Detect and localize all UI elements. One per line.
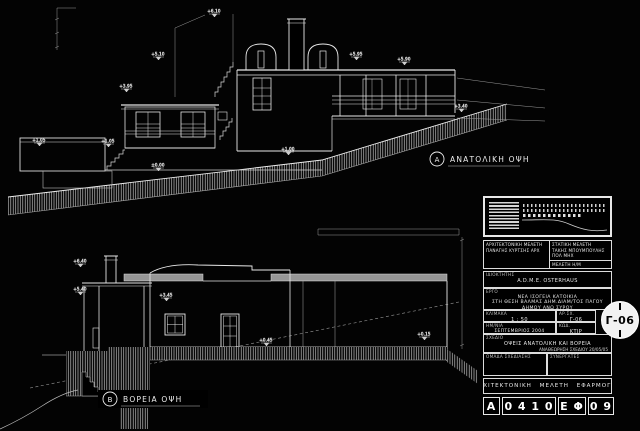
drawing-revision: ΑΝΑΘΕΩΡΗΣΗ ΣΧΕΔΙΟΥ 20/05/05 — [484, 347, 611, 352]
north-view-label: B ΒΟΡΕΙΑ ΟΨΗ — [98, 390, 208, 408]
east-annex-window-2 — [181, 112, 205, 137]
level-text: ±0.00 — [151, 163, 165, 168]
north-ground-hatch — [0, 347, 478, 429]
code-box-4: 0 9 — [588, 397, 614, 415]
east-view-title: ΑΝΑΤΟΛΙΚΗ ΟΨΗ — [450, 155, 530, 164]
east-arch-2 — [308, 44, 338, 70]
partners-label: ΣΥΝΕΡΓΑΤΕΣ — [548, 354, 611, 360]
east-view-tag: A — [435, 156, 440, 164]
architect-role: ΑΡΧΙΤΕΚΤΟΝΙΚΗ ΜΕΛΕΤΗ — [486, 242, 542, 247]
code-box-3: Ε Φ — [558, 397, 586, 415]
code-box-2: 0 4 1 0 — [502, 397, 556, 415]
level-text: +1.05 — [101, 139, 115, 144]
level-text: +5.90 — [397, 57, 411, 62]
date-cell: ΗΜ/ΝΙΑ ΣΕΠΤΕΜΒΡΙΟΣ 2004 — [483, 322, 556, 334]
east-ground-hatch — [8, 104, 507, 215]
east-stairs — [107, 14, 233, 170]
titleblock-code-boxes: Α 0 4 1 0 Ε Φ 0 9 — [483, 397, 614, 415]
mep-role: ΜΕΛΕΤΗ Η/Μ — [552, 262, 581, 267]
north-roof-beam-right — [271, 274, 447, 281]
level-text: +5.10 — [151, 52, 165, 57]
structural-cell: ΣΤΑΤΙΚΗ ΜΕΛΕΤΗ ΤΑΚΗΣ ΜΠΟΥΜΠΟΥΛΗΣ ΠΟΛ ΜΗΧ — [550, 241, 611, 261]
titleblock-project: ΕΡΓΟ ΝΕΑ ΙΣΟΓΕΙΑ ΚΑΤΟΙΚΙΑ ΣΤΗ ΘΕΣΗ ΒΑΛΜΑ… — [483, 288, 612, 310]
structural-role: ΣΤΑΤΙΚΗ ΜΕΛΕΤΗ — [552, 242, 591, 247]
east-window-1 — [253, 78, 271, 110]
level-text: +6.10 — [207, 9, 221, 14]
level-text: +3.40 — [454, 104, 468, 109]
number-cell: ΑΡ.ΣΧ. Γ-06 — [556, 310, 596, 322]
code-cell: ΚΩΔ. ΚΤΙΡ — [556, 322, 596, 334]
north-porch — [42, 283, 152, 355]
level-text: +1.05 — [32, 138, 46, 143]
owner-name: A.D.M.E. OSTERHAUS — [484, 278, 611, 284]
titleblock-owner: ΙΔΙΟΚΤΗΤΗΣ A.D.M.E. OSTERHAUS — [483, 271, 612, 288]
level-text: +3.95 — [119, 84, 133, 89]
titleblock-drawing-title: ΣΧΕΔΙΟ ΟΨΕΙΣ ΑΝΑΤΟΛΙΚΗ ΚΑΙ ΒΟΡΕΙΑ ΑΝΑΘΕΩ… — [483, 334, 612, 353]
east-annex-window-1 — [136, 112, 160, 137]
level-text: +5.40 — [73, 287, 87, 292]
drawing-number-badge: Γ-06 — [601, 301, 639, 339]
east-chimney — [287, 19, 306, 70]
north-view-tag: B — [108, 396, 113, 404]
east-veranda — [332, 70, 455, 119]
north-chimney — [104, 256, 118, 283]
north-level-markers: +6.40 +5.40 +3.45 +0.45 +0.15 — [73, 259, 431, 347]
badge-text: Γ-06 — [606, 314, 635, 327]
level-text: +3.45 — [159, 293, 173, 298]
mep-cell: ΜΕΛΕΤΗ Η/Μ ΤΑΚΗΣ ΒΕΝΕΔΙΚΤΟΣ Η/Μ ΜΗΧ — [550, 261, 611, 269]
level-text: +5.95 — [349, 52, 363, 57]
east-left-wall — [20, 138, 112, 188]
titleblock-location-map — [483, 196, 612, 237]
team-label: ΟΜΑΔΑ ΣΧΕΔΙΑΣΗΣ — [484, 354, 546, 360]
level-text: +6.40 — [73, 259, 87, 264]
east-annex — [121, 105, 227, 148]
structural-name: ΤΑΚΗΣ ΜΠΟΥΜΠΟΥΛΗΣ ΠΟΛ ΜΗΧ — [552, 248, 605, 259]
level-text: +0.45 — [259, 338, 273, 343]
phase-text: ΑΡΧΙΤΕΚΤΟΝΙΚΗ ΜΕΛΕΤΗ ΕΦΑΡΜΟΓΗΣ — [483, 383, 612, 389]
drawing-sheet: +1.05 +1.05 +3.95 +5.10 +6.10 ±0.00 +1.0… — [0, 0, 640, 431]
north-window — [165, 314, 185, 335]
north-roof-beam-left — [124, 274, 203, 281]
map-coastline — [522, 220, 607, 231]
architect-name: ΠΑΝΑΓΗΣ ΚΥΡΤΣΗΣ ΑΡΧ — [486, 248, 540, 253]
architect-cell: ΑΡΧΙΤΕΚΤΟΝΙΚΗ ΜΕΛΕΤΗ ΠΑΝΑΓΗΣ ΚΥΡΤΣΗΣ ΑΡΧ — [484, 241, 550, 268]
titleblock-consultants: ΑΡΧΙΤΕΚΤΟΝΙΚΗ ΜΕΛΕΤΗ ΠΑΝΑΓΗΣ ΚΥΡΤΣΗΣ ΑΡΧ… — [483, 240, 612, 269]
code-box-1: Α — [483, 397, 500, 415]
level-text: +1.00 — [281, 147, 295, 152]
north-door — [221, 314, 239, 349]
level-text: +0.15 — [417, 332, 431, 337]
north-view-title: ΒΟΡΕΙΑ ΟΨΗ — [123, 395, 182, 404]
team-cell: ΟΜΑΔΑ ΣΧΕΔΙΑΣΗΣ — [483, 353, 547, 376]
east-arch-1 — [246, 44, 276, 70]
mep-name: ΤΑΚΗΣ ΒΕΝΕΔΙΚΤΟΣ Η/Μ ΜΗΧ — [552, 268, 607, 269]
partners-cell: ΣΥΝΕΡΓΑΤΕΣ — [547, 353, 612, 376]
north-dimension-lines — [318, 229, 464, 349]
east-view-label: A ΑΝΑΤΟΛΙΚΗ ΟΨΗ — [430, 152, 530, 166]
titleblock-phase-bar: ΑΡΧΙΤΕΚΤΟΝΙΚΗ ΜΕΛΕΤΗ ΕΦΑΡΜΟΓΗΣ — [483, 378, 612, 394]
scale-cell: ΚΛΙΜΑΚΑ 1 : 50 — [483, 310, 556, 322]
east-elevation-drawing: +1.05 +1.05 +3.95 +5.10 +6.10 ±0.00 +1.0… — [0, 0, 640, 220]
